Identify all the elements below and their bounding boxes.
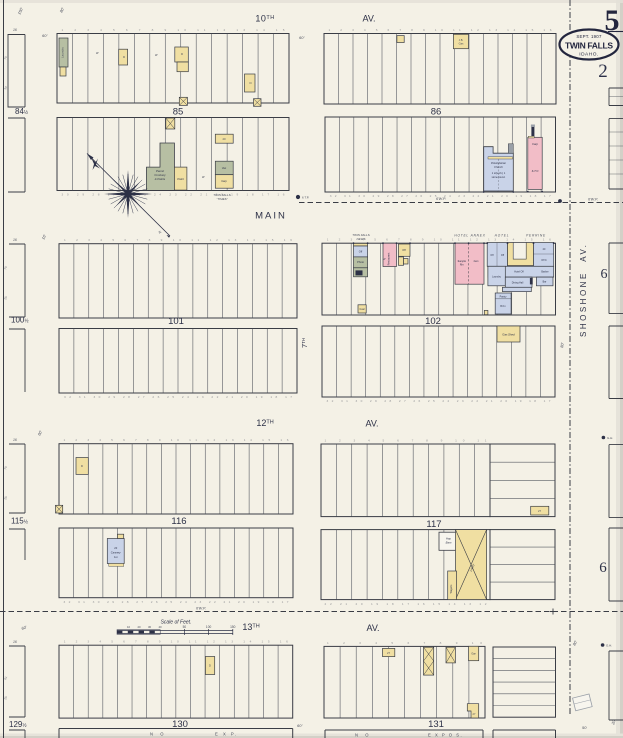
svg-text:S.T.O: S.T.O [532, 169, 540, 173]
svg-text:“TIMES”: “TIMES” [216, 197, 228, 201]
svg-text:1st: 1st [114, 555, 118, 559]
svg-text:30: 30 [148, 625, 152, 629]
svg-text:PERRINE: PERRINE [526, 234, 546, 238]
svg-text:150: 150 [230, 625, 236, 629]
svg-text:Off: Off [490, 254, 493, 257]
svg-text:HOTEL ANNEX: HOTEL ANNEX [454, 234, 485, 238]
svg-text:J.B.: J.B. [459, 38, 464, 42]
svg-text:N O: N O [355, 733, 371, 738]
svg-text:2: 2 [598, 61, 608, 82]
svg-text:50: 50 [582, 725, 587, 730]
svg-text:80’: 80’ [559, 342, 565, 348]
svg-text:AV.: AV. [362, 14, 375, 24]
svg-text:Gas: Gas [459, 42, 464, 46]
svg-text:6’W.P.: 6’W.P. [196, 607, 206, 611]
svg-text:Barber: Barber [541, 271, 548, 274]
svg-text:60’: 60’ [42, 33, 47, 38]
svg-text:101: 101 [168, 316, 184, 327]
svg-text:N O: N O [150, 732, 166, 737]
svg-text:Barn: Barn [446, 541, 452, 545]
svg-text:16: 16 [13, 640, 17, 644]
svg-text:6: 6 [601, 267, 608, 282]
svg-text:SEPT. 1907: SEPT. 1907 [576, 34, 602, 39]
svg-text:SHOSHONE AV.: SHOSHONE AV. [579, 243, 588, 337]
svg-text:Gen: Gen [474, 260, 479, 263]
svg-text:131: 131 [428, 719, 444, 730]
svg-text:Hay: Hay [446, 537, 451, 541]
svg-text:1 st(w.ch.) 1: 1 st(w.ch.) 1 [492, 172, 506, 175]
svg-text:20: 20 [137, 625, 141, 629]
svg-text:Vac: Vac [222, 166, 227, 170]
svg-text:Coal: Coal [360, 308, 365, 311]
svg-text:MAIN: MAIN [255, 211, 287, 222]
svg-text:16: 16 [13, 28, 17, 32]
svg-text:G.H.: G.H. [607, 436, 613, 440]
svg-text:6’W.P.: 6’W.P. [588, 198, 598, 202]
svg-text:NEWS: NEWS [357, 237, 366, 241]
svg-text:60’: 60’ [299, 35, 304, 40]
svg-text:G.H.: G.H. [606, 644, 612, 648]
svg-text:Rm: Rm [460, 264, 464, 267]
svg-text:40: 40 [158, 625, 162, 629]
svg-text:E X P.: E X P. [215, 732, 238, 737]
svg-text:Church: Church [494, 165, 503, 169]
svg-text:85: 85 [173, 107, 184, 118]
svg-text:Wagons: Wagons [450, 584, 453, 593]
svg-text:Gar: Gar [471, 652, 475, 656]
svg-text:117: 117 [426, 519, 441, 530]
svg-text:10: 10 [127, 625, 131, 629]
svg-text:Carp: Carp [221, 179, 227, 183]
svg-text:Off: Off [501, 254, 504, 257]
svg-text:Pastry: Pastry [500, 295, 508, 298]
svg-text:100: 100 [206, 625, 212, 629]
svg-text:116: 116 [171, 516, 186, 527]
svg-text:Off C: Off C [541, 259, 547, 262]
svg-text:27: 27 [538, 509, 542, 513]
svg-text:Presbyterian: Presbyterian [491, 161, 507, 165]
svg-text:27: 27 [387, 651, 391, 655]
svg-text:HOTEL: HOTEL [495, 234, 510, 238]
svg-text:Laundry: Laundry [492, 276, 501, 279]
svg-text:Paint: Paint [177, 177, 184, 181]
svg-text:B.Kn: B.Kn [500, 305, 506, 308]
svg-text:6 T.P.: 6 T.P. [302, 196, 309, 200]
svg-text:Scale of Feet.: Scale of Feet. [161, 620, 192, 626]
svg-text:IDAHO.: IDAHO. [579, 52, 599, 58]
svg-text:& Paints: & Paints [155, 177, 166, 181]
svg-text:Bar: Bar [543, 281, 547, 284]
svg-text:Cannery: Cannery [111, 551, 122, 555]
svg-text:16: 16 [13, 438, 17, 442]
svg-text:Off: Off [359, 250, 363, 254]
svg-text:AV.: AV. [366, 623, 379, 633]
svg-text:16: 16 [13, 238, 17, 242]
svg-text:Gas Shed: Gas Shed [502, 333, 515, 337]
svg-text:60’: 60’ [297, 723, 302, 728]
svg-text:20: 20 [222, 137, 226, 141]
svg-text:102: 102 [425, 316, 441, 327]
svg-text:AV.: AV. [365, 419, 378, 429]
svg-text:TWIN FALLS: TWIN FALLS [565, 41, 613, 51]
svg-text:Photo: Photo [357, 260, 364, 264]
svg-text:6: 6 [599, 560, 607, 576]
svg-text:Off: Off [402, 248, 406, 252]
svg-text:E X P O S.: E X P O S. [428, 733, 463, 738]
svg-text:Restaurant: Restaurant [387, 252, 391, 265]
svg-text:Hotel Off: Hotel Off [514, 271, 524, 274]
svg-text:Laundry: Laundry [61, 47, 65, 58]
svg-text:86: 86 [431, 107, 442, 118]
svg-text:Carp: Carp [532, 142, 538, 146]
svg-text:Dining Hall: Dining Hall [512, 282, 524, 285]
svg-text:50: 50 [183, 625, 187, 629]
